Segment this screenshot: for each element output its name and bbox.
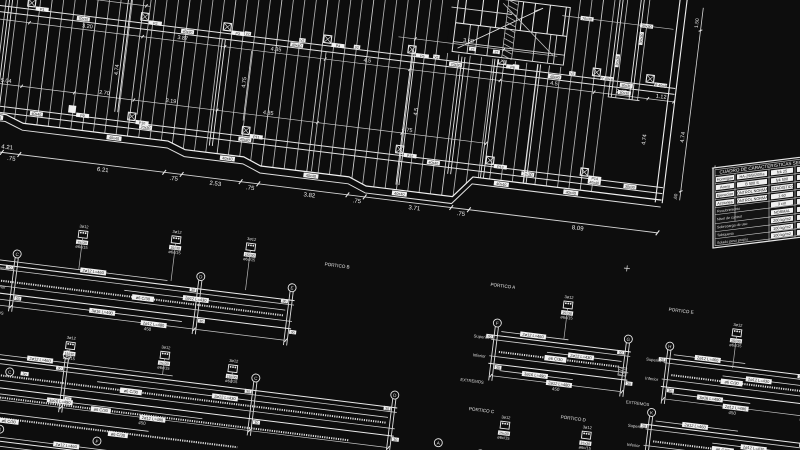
- svg-text:P4: P4: [335, 44, 340, 49]
- svg-text:30: 30: [496, 366, 500, 370]
- svg-text:.75: .75: [169, 175, 179, 183]
- svg-text:P12: P12: [407, 154, 414, 159]
- svg-text:P3: P3: [235, 31, 240, 36]
- svg-text:P2: P2: [153, 21, 158, 26]
- svg-text:P1: P1: [40, 7, 45, 12]
- svg-text:P10: P10: [139, 121, 146, 126]
- svg-text:30: 30: [22, 372, 26, 376]
- svg-text:E: E: [290, 285, 294, 290]
- svg-text:.60: .60: [673, 193, 679, 200]
- svg-text:4.5: 4.5: [550, 81, 558, 88]
- svg-text:V2: V2: [300, 38, 305, 42]
- svg-text:A: A: [436, 440, 440, 445]
- svg-text:Superior: Superior: [0, 264, 10, 271]
- svg-text:ø6c/15: ø6c/15: [578, 444, 592, 450]
- svg-text:.75: .75: [7, 155, 17, 163]
- svg-text:22: 22: [494, 50, 498, 54]
- svg-text:P14: P14: [591, 176, 598, 181]
- svg-text:V2: V2: [355, 45, 360, 49]
- svg-text:V2: V2: [246, 32, 251, 36]
- svg-text:30: 30: [254, 421, 258, 425]
- svg-text:30: 30: [290, 330, 294, 334]
- svg-text:1.50: 1.50: [694, 18, 701, 29]
- svg-text:P11: P11: [253, 135, 260, 140]
- svg-text:P9: P9: [80, 114, 85, 119]
- svg-text:30: 30: [668, 389, 672, 393]
- svg-text:.75: .75: [352, 197, 362, 205]
- svg-text:30: 30: [16, 297, 20, 301]
- svg-text:V2: V2: [570, 72, 575, 76]
- svg-text:450: 450: [138, 420, 147, 426]
- svg-text:450: 450: [143, 326, 152, 332]
- svg-text:4.5: 4.5: [363, 58, 371, 65]
- svg-text:K: K: [650, 410, 654, 415]
- svg-text:22: 22: [470, 47, 474, 51]
- svg-text:450: 450: [552, 386, 561, 392]
- svg-text:.75: .75: [456, 210, 466, 218]
- svg-text:450: 450: [728, 410, 737, 416]
- svg-text:H: H: [668, 344, 672, 349]
- svg-text:P5: P5: [420, 54, 425, 59]
- svg-text:P6: P6: [510, 65, 515, 70]
- svg-text:V2: V2: [434, 55, 439, 59]
- svg-text:4.5: 4.5: [413, 107, 420, 115]
- svg-text:.75: .75: [246, 184, 256, 192]
- svg-text:P13: P13: [497, 165, 504, 170]
- svg-text:30: 30: [627, 382, 631, 386]
- svg-text:30: 30: [393, 438, 397, 442]
- svg-text:30: 30: [199, 319, 203, 323]
